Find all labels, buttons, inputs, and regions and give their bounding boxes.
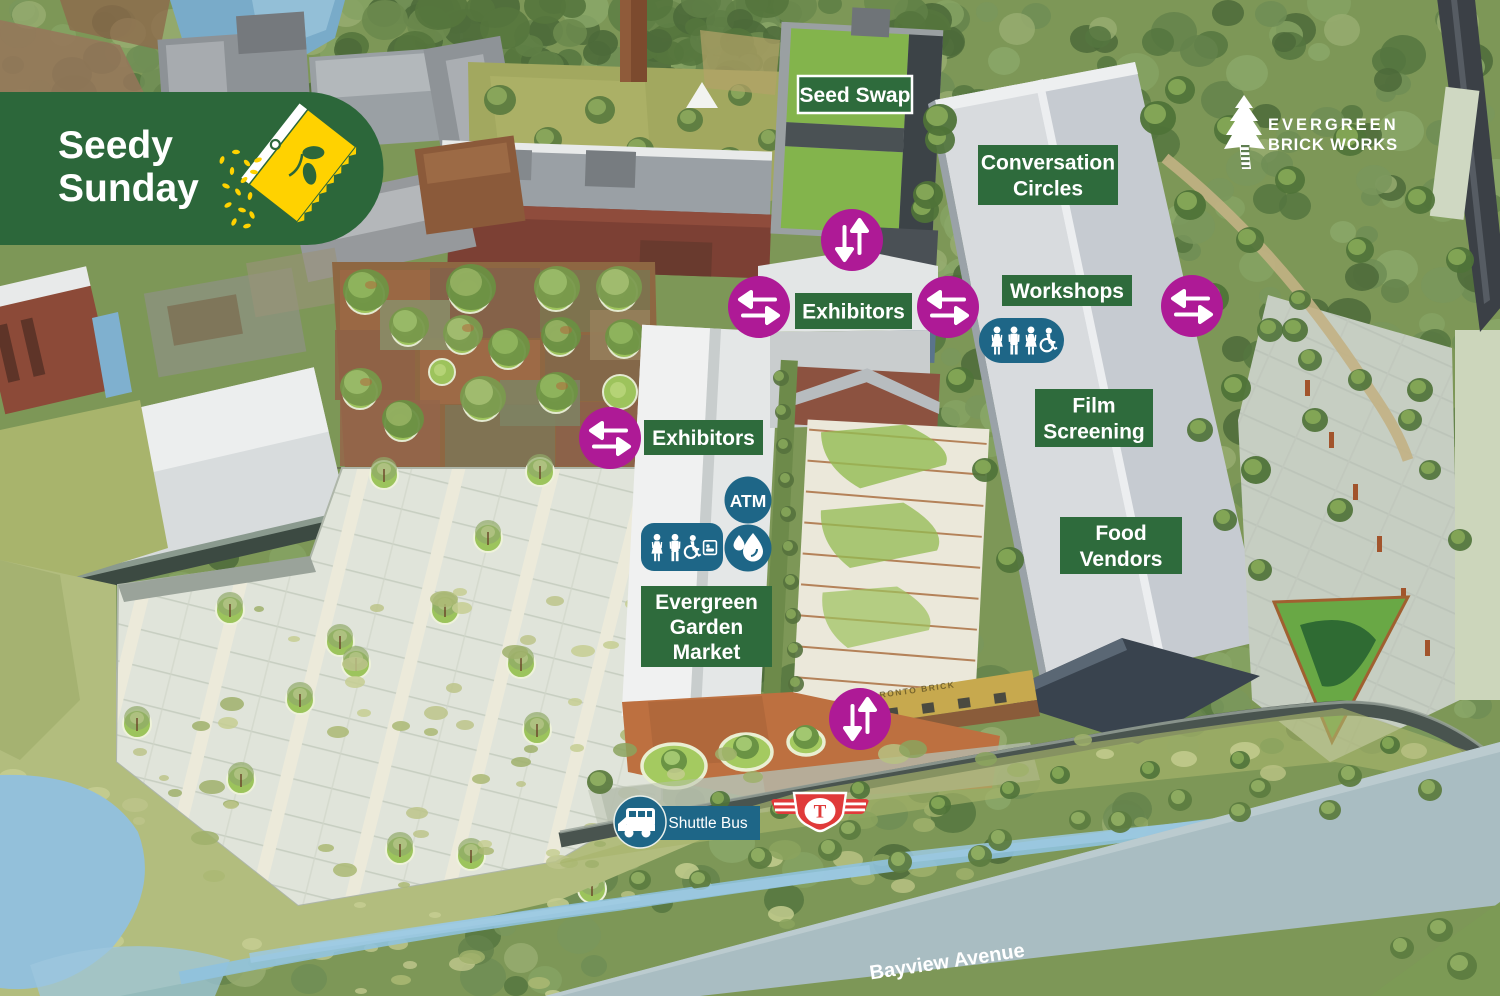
svg-text:Sunday: Sunday: [58, 167, 199, 210]
svg-text:Vendors: Vendors: [1080, 548, 1163, 571]
svg-text:EVERGREEN: EVERGREEN: [1268, 116, 1399, 134]
svg-text:Seed Swap: Seed Swap: [800, 84, 911, 107]
svg-text:Shuttle Bus: Shuttle Bus: [668, 815, 748, 832]
svg-text:T: T: [814, 802, 827, 823]
svg-text:Conversation: Conversation: [981, 151, 1115, 174]
svg-text:Film: Film: [1072, 394, 1115, 417]
svg-text:BRICK WORKS: BRICK WORKS: [1268, 136, 1398, 154]
svg-text:Exhibitors: Exhibitors: [652, 427, 755, 450]
svg-text:Garden: Garden: [670, 616, 744, 639]
svg-text:Evergreen: Evergreen: [655, 591, 758, 614]
svg-text:Exhibitors: Exhibitors: [802, 300, 905, 323]
svg-text:Screening: Screening: [1043, 420, 1145, 443]
svg-text:Food: Food: [1095, 522, 1146, 545]
svg-text:Market: Market: [673, 641, 741, 664]
svg-text:Workshops: Workshops: [1010, 280, 1124, 303]
svg-text:ATM: ATM: [730, 491, 767, 511]
svg-text:Seedy: Seedy: [58, 124, 173, 167]
svg-text:Circles: Circles: [1013, 177, 1083, 200]
